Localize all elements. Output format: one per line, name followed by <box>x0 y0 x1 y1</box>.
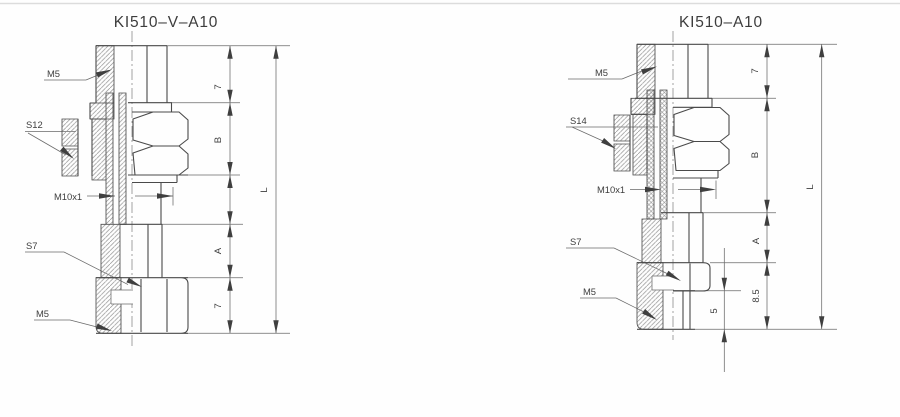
right-callout-s14: S14 <box>570 115 587 126</box>
left-dim-a: A <box>213 247 224 254</box>
left-dim-l: L <box>259 187 270 193</box>
left-callout-m5-top: M5 <box>47 68 60 79</box>
right-drawing: KI510–A10 M5 S14 M10x1 S7 M5 7 B A 8.5 5… <box>566 14 837 372</box>
right-bottom-cap-section <box>637 263 663 330</box>
right-thread-section-hatching <box>647 90 667 219</box>
left-callout-m10x1: M10x1 <box>54 191 82 202</box>
right-callout-s7: S7 <box>570 236 581 247</box>
right-dim-8-5: 8.5 <box>751 289 762 302</box>
right-callout-m10x1: M10x1 <box>597 184 625 195</box>
left-bottom-port-notch <box>111 290 133 304</box>
right-dim-5: 5 <box>709 308 720 313</box>
right-title: KI510–A10 <box>679 14 763 31</box>
right-dim-l: L <box>805 184 816 190</box>
left-dim-b: B <box>213 137 224 143</box>
technical-drawing-canvas: KI510–V–A10 M5 S12 M10x1 S7 M5 7 B A 7 L… <box>0 0 900 417</box>
left-callout-m5-bottom: M5 <box>36 308 49 319</box>
left-drawing: KI510–V–A10 M5 S12 M10x1 S7 M5 7 B A 7 L <box>25 14 290 347</box>
right-dimension-arrowheads <box>722 44 825 342</box>
right-dim-7-top: 7 <box>750 68 761 73</box>
right-callout-m5-top: M5 <box>595 67 608 78</box>
left-callout-s7: S7 <box>26 240 37 251</box>
drawing-sheet: KI510–V–A10 M5 S12 M10x1 S7 M5 7 B A 7 L… <box>0 0 900 417</box>
right-callout-m5-bottom: M5 <box>583 286 596 297</box>
left-section-hatching <box>62 46 126 278</box>
left-dimension-arrowheads <box>227 46 278 334</box>
right-dim-a: A <box>751 237 762 244</box>
left-title: KI510–V–A10 <box>114 14 218 31</box>
right-bottom-port-notch <box>652 276 674 290</box>
left-extension-lines <box>162 46 290 334</box>
right-dim-b: B <box>750 152 761 158</box>
left-dim-7-bottom: 7 <box>213 303 224 308</box>
left-dim-7-top: 7 <box>213 84 224 89</box>
left-callout-s12: S12 <box>26 119 43 130</box>
